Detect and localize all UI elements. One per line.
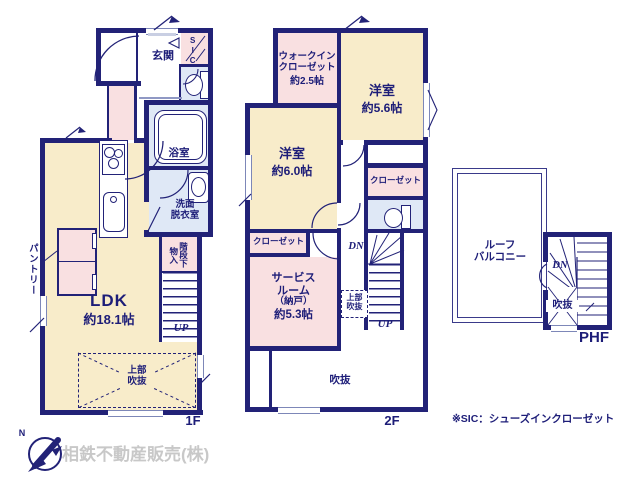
- void-above-line2: 吹抜: [119, 377, 155, 388]
- void-above-label-1f: 上部 吹抜: [119, 366, 155, 388]
- door-arc-icon: [343, 145, 364, 166]
- closet-right-label: クローゼット: [370, 176, 421, 186]
- genkan-label: 玄関: [143, 50, 183, 63]
- wall: [320, 407, 428, 412]
- storage-label-line1: 階段下: [178, 240, 188, 270]
- window-tick-icon: [237, 192, 253, 208]
- wall: [365, 140, 428, 145]
- wall: [40, 326, 45, 415]
- wic-label-line2: クローゼット: [276, 63, 338, 74]
- wall: [306, 233, 310, 257]
- room-corridor-1f: [109, 84, 134, 140]
- pantry-notch: [92, 274, 97, 290]
- vent-mark-icon: [62, 124, 92, 140]
- genkan-step-line: [139, 97, 182, 99]
- dn-label-2f: DN: [344, 241, 368, 253]
- wall: [245, 103, 250, 155]
- wall: [364, 163, 428, 168]
- wic-label: ウォークイン クローゼット 約2.5帖: [276, 52, 338, 87]
- pantry-shelf-divider: [59, 261, 95, 262]
- void-label-phf: 吹抜: [546, 300, 579, 312]
- window-casement-icon: [427, 88, 439, 132]
- wall: [245, 346, 341, 351]
- door-arc-icon: [95, 36, 139, 81]
- wall: [245, 103, 341, 108]
- sink-tap: [110, 196, 117, 203]
- wall: [543, 325, 551, 330]
- service-line1: サービス: [251, 272, 336, 285]
- closet-left-label: クローゼット: [253, 237, 304, 247]
- burner: [108, 158, 119, 169]
- wall: [364, 196, 428, 200]
- pantry-label: パントリー: [26, 226, 37, 312]
- door-arc-icon: [523, 263, 547, 289]
- up-label-2f: UP: [370, 318, 400, 331]
- vent-mark-icon: [336, 12, 378, 32]
- western-5-6-size: 約5.6帖: [352, 102, 412, 116]
- wall: [197, 237, 202, 355]
- roof-balcony-line1: ルーフ: [472, 239, 528, 251]
- door-arc-icon: [338, 203, 360, 225]
- void-above-label-2f: 上部 吹抜: [342, 293, 367, 311]
- wic-size: 約2.5帖: [276, 76, 338, 88]
- western-6-0-label: 洋室 約6.0帖: [262, 147, 322, 179]
- wall: [144, 100, 208, 105]
- sic-footnote: ※SIC：シューズインクローゼット: [452, 413, 612, 425]
- pantry-notch: [92, 233, 97, 249]
- void-label-2f: 吹抜: [322, 374, 358, 386]
- door-arc-icon: [183, 69, 198, 84]
- floor1-label: 1F: [180, 414, 206, 429]
- burner: [114, 149, 123, 158]
- pantry-leader-line: [42, 248, 58, 264]
- window: [108, 410, 163, 417]
- washroom-label: 洗面 脱衣室: [163, 200, 207, 222]
- floor-plan: 玄関 SIC 浴室 洗面 脱衣室 パントリー 階段下 物入 LDK 約18.1帖…: [0, 0, 640, 480]
- roof-balcony-label: ルーフ バルコニー: [472, 239, 528, 263]
- wall: [134, 81, 137, 141]
- western-5-6-name: 洋室: [352, 84, 412, 99]
- wall: [159, 237, 162, 342]
- door-arc-icon: [160, 170, 188, 198]
- compass-n-label: N: [16, 428, 28, 438]
- void-above-2f-line1: 上部: [342, 293, 367, 302]
- wall: [364, 140, 368, 233]
- wall: [337, 108, 341, 203]
- entry-door-mark-icon: [146, 12, 188, 32]
- western-6-0-size: 約6.0帖: [262, 165, 322, 179]
- door-leaf-icon: [146, 205, 162, 233]
- sic-label: SIC: [188, 36, 197, 64]
- dn-label-phf: DN: [548, 260, 572, 272]
- folding-door-icon: [167, 36, 181, 50]
- toilet-bowl: [384, 208, 403, 228]
- door-arc-icon: [312, 203, 337, 228]
- window-tick-icon: [28, 316, 46, 334]
- service-size: 約5.3帖: [251, 309, 336, 322]
- western-5-6-label: 洋室 約5.6帖: [352, 84, 412, 116]
- wall: [423, 137, 428, 412]
- up-label-1f: UP: [165, 322, 197, 335]
- wall: [208, 28, 213, 237]
- phf-label: PHF: [574, 329, 614, 346]
- door-arc-icon: [313, 233, 339, 259]
- wall: [40, 410, 108, 415]
- void-above-2f-line2: 吹抜: [342, 302, 367, 311]
- roof-balcony-line2: バルコニー: [472, 251, 528, 263]
- wall: [607, 232, 612, 330]
- wall: [423, 28, 428, 83]
- window-tick-icon: [196, 372, 212, 388]
- floor2-label: 2F: [379, 414, 405, 429]
- company-name: 相鉄不動産販売(株): [62, 440, 282, 465]
- stair-winder-2f: [368, 233, 404, 264]
- service-room-label: サービス ルーム （納戸） 約5.3帖: [251, 272, 336, 322]
- wall: [245, 253, 310, 257]
- storage-label: 階段下 物入: [168, 240, 188, 270]
- washbasin-bowl: [191, 177, 206, 197]
- ldk-size-label: 約18.1帖: [70, 313, 148, 328]
- wall: [40, 138, 45, 296]
- bath-label: 浴室: [157, 147, 201, 159]
- wall: [245, 407, 278, 412]
- window: [278, 407, 320, 414]
- washroom-label-line2: 脱衣室: [163, 211, 207, 222]
- service-line3: （納戸）: [251, 297, 336, 308]
- wall: [269, 351, 272, 412]
- wall: [107, 86, 109, 138]
- ldk-name-label: LDK: [80, 291, 138, 311]
- storage-label-line2: 物入: [168, 240, 178, 270]
- western-6-0-name: 洋室: [262, 147, 322, 162]
